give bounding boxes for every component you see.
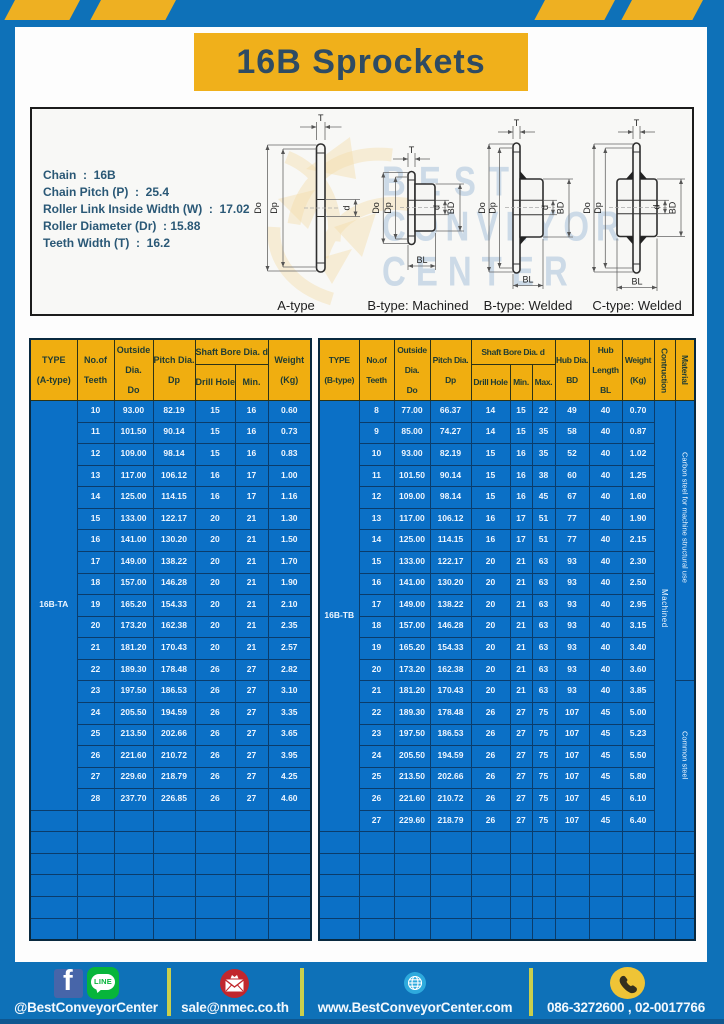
svg-text:d: d	[432, 205, 442, 210]
svg-text:Do: Do	[371, 202, 381, 214]
svg-text:d: d	[540, 205, 550, 210]
svg-text:T: T	[409, 145, 415, 155]
svg-text:T: T	[634, 118, 640, 128]
svg-text:d: d	[652, 204, 662, 209]
svg-text:Dp: Dp	[487, 202, 497, 214]
svg-text:BD: BD	[446, 201, 456, 214]
svg-text:BD: BD	[668, 201, 678, 214]
svg-text:Do: Do	[477, 202, 487, 214]
svg-text:Dp: Dp	[269, 202, 279, 214]
svg-text:Dp: Dp	[593, 202, 603, 214]
svg-text:BL: BL	[416, 255, 427, 265]
svg-text:Do: Do	[582, 202, 592, 214]
svg-text:T: T	[514, 118, 520, 128]
svg-text:BD: BD	[556, 201, 566, 214]
svg-text:Do: Do	[253, 202, 263, 214]
svg-text:Dp: Dp	[383, 202, 393, 214]
svg-text:T: T	[318, 113, 324, 123]
svg-text:BL: BL	[522, 275, 533, 285]
svg-text:BL: BL	[631, 277, 642, 287]
svg-text:d: d	[342, 205, 352, 210]
